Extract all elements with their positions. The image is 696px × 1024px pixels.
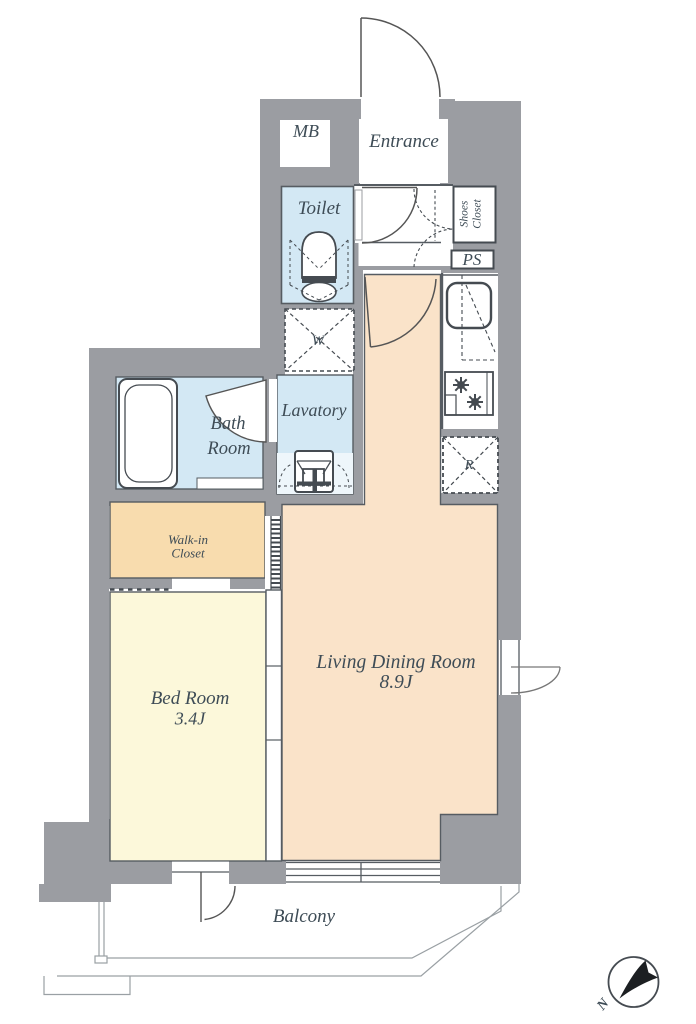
svg-text:MB: MB xyxy=(292,121,319,141)
svg-text:3.4J: 3.4J xyxy=(174,709,207,729)
svg-text:Balcony: Balcony xyxy=(273,906,336,927)
svg-text:ShoesCloset: ShoesCloset xyxy=(459,199,484,229)
svg-text:R: R xyxy=(464,458,474,473)
svg-text:Entrance: Entrance xyxy=(368,131,439,152)
svg-text:Bed Room: Bed Room xyxy=(151,688,230,709)
svg-text:Toilet: Toilet xyxy=(298,198,341,219)
svg-text:Living Dining Room: Living Dining Room xyxy=(315,652,475,673)
svg-text:8.9J: 8.9J xyxy=(379,672,413,693)
svg-text:W: W xyxy=(312,333,326,349)
svg-text:Bath: Bath xyxy=(211,414,246,434)
svg-text:Lavatory: Lavatory xyxy=(281,400,347,420)
svg-text:Closet: Closet xyxy=(171,546,205,561)
svg-text:Room: Room xyxy=(206,439,250,459)
svg-text:PS: PS xyxy=(462,250,482,269)
